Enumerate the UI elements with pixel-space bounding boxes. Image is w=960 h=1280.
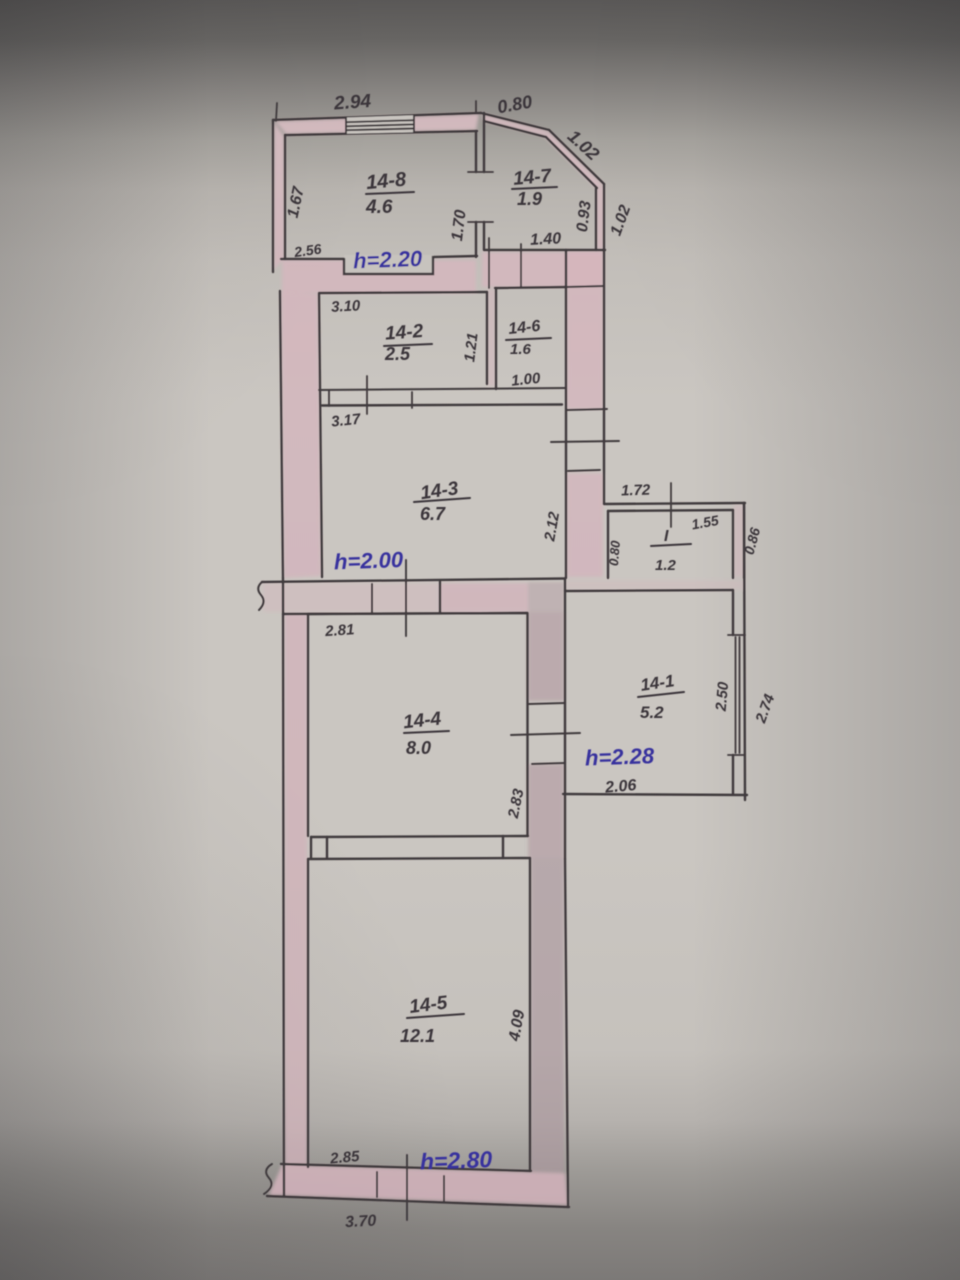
svg-text:1.2: 1.2 [655, 557, 677, 574]
svg-text:3.70: 3.70 [345, 1213, 377, 1232]
svg-text:2.94: 2.94 [332, 91, 372, 115]
svg-text:2.50: 2.50 [713, 681, 733, 713]
svg-text:1.9: 1.9 [517, 189, 542, 209]
svg-text:6.7: 6.7 [420, 504, 446, 524]
svg-text:1.40: 1.40 [530, 230, 562, 249]
svg-text:2.81: 2.81 [324, 621, 355, 640]
svg-text:1.6: 1.6 [510, 341, 532, 358]
svg-text:14-4: 14-4 [402, 708, 442, 733]
svg-text:2.5: 2.5 [384, 344, 411, 364]
svg-text:3.17: 3.17 [330, 411, 361, 431]
svg-text:3.10: 3.10 [331, 297, 362, 316]
svg-text:1.72: 1.72 [621, 482, 651, 500]
svg-text:h=2.28: h=2.28 [585, 743, 656, 770]
svg-text:8.0: 8.0 [406, 738, 431, 758]
svg-text:2.06: 2.06 [604, 777, 638, 797]
svg-text:4.6: 4.6 [365, 197, 393, 218]
svg-text:h=2.20: h=2.20 [353, 246, 424, 273]
svg-text:14-7: 14-7 [512, 166, 553, 190]
svg-text:14-2: 14-2 [384, 321, 424, 345]
svg-text:h=2.80: h=2.80 [419, 1146, 492, 1175]
svg-text:I: I [664, 528, 669, 545]
svg-text:14-8: 14-8 [365, 169, 408, 194]
svg-text:12.1: 12.1 [400, 1026, 435, 1046]
svg-text:2.85: 2.85 [329, 1148, 361, 1168]
svg-text:1.00: 1.00 [510, 370, 541, 390]
svg-text:h=2.00: h=2.00 [334, 547, 405, 574]
svg-text:14-6: 14-6 [507, 318, 541, 338]
svg-text:0.80: 0.80 [606, 539, 623, 566]
svg-text:5.2: 5.2 [640, 703, 664, 722]
svg-text:1.21: 1.21 [461, 332, 481, 363]
